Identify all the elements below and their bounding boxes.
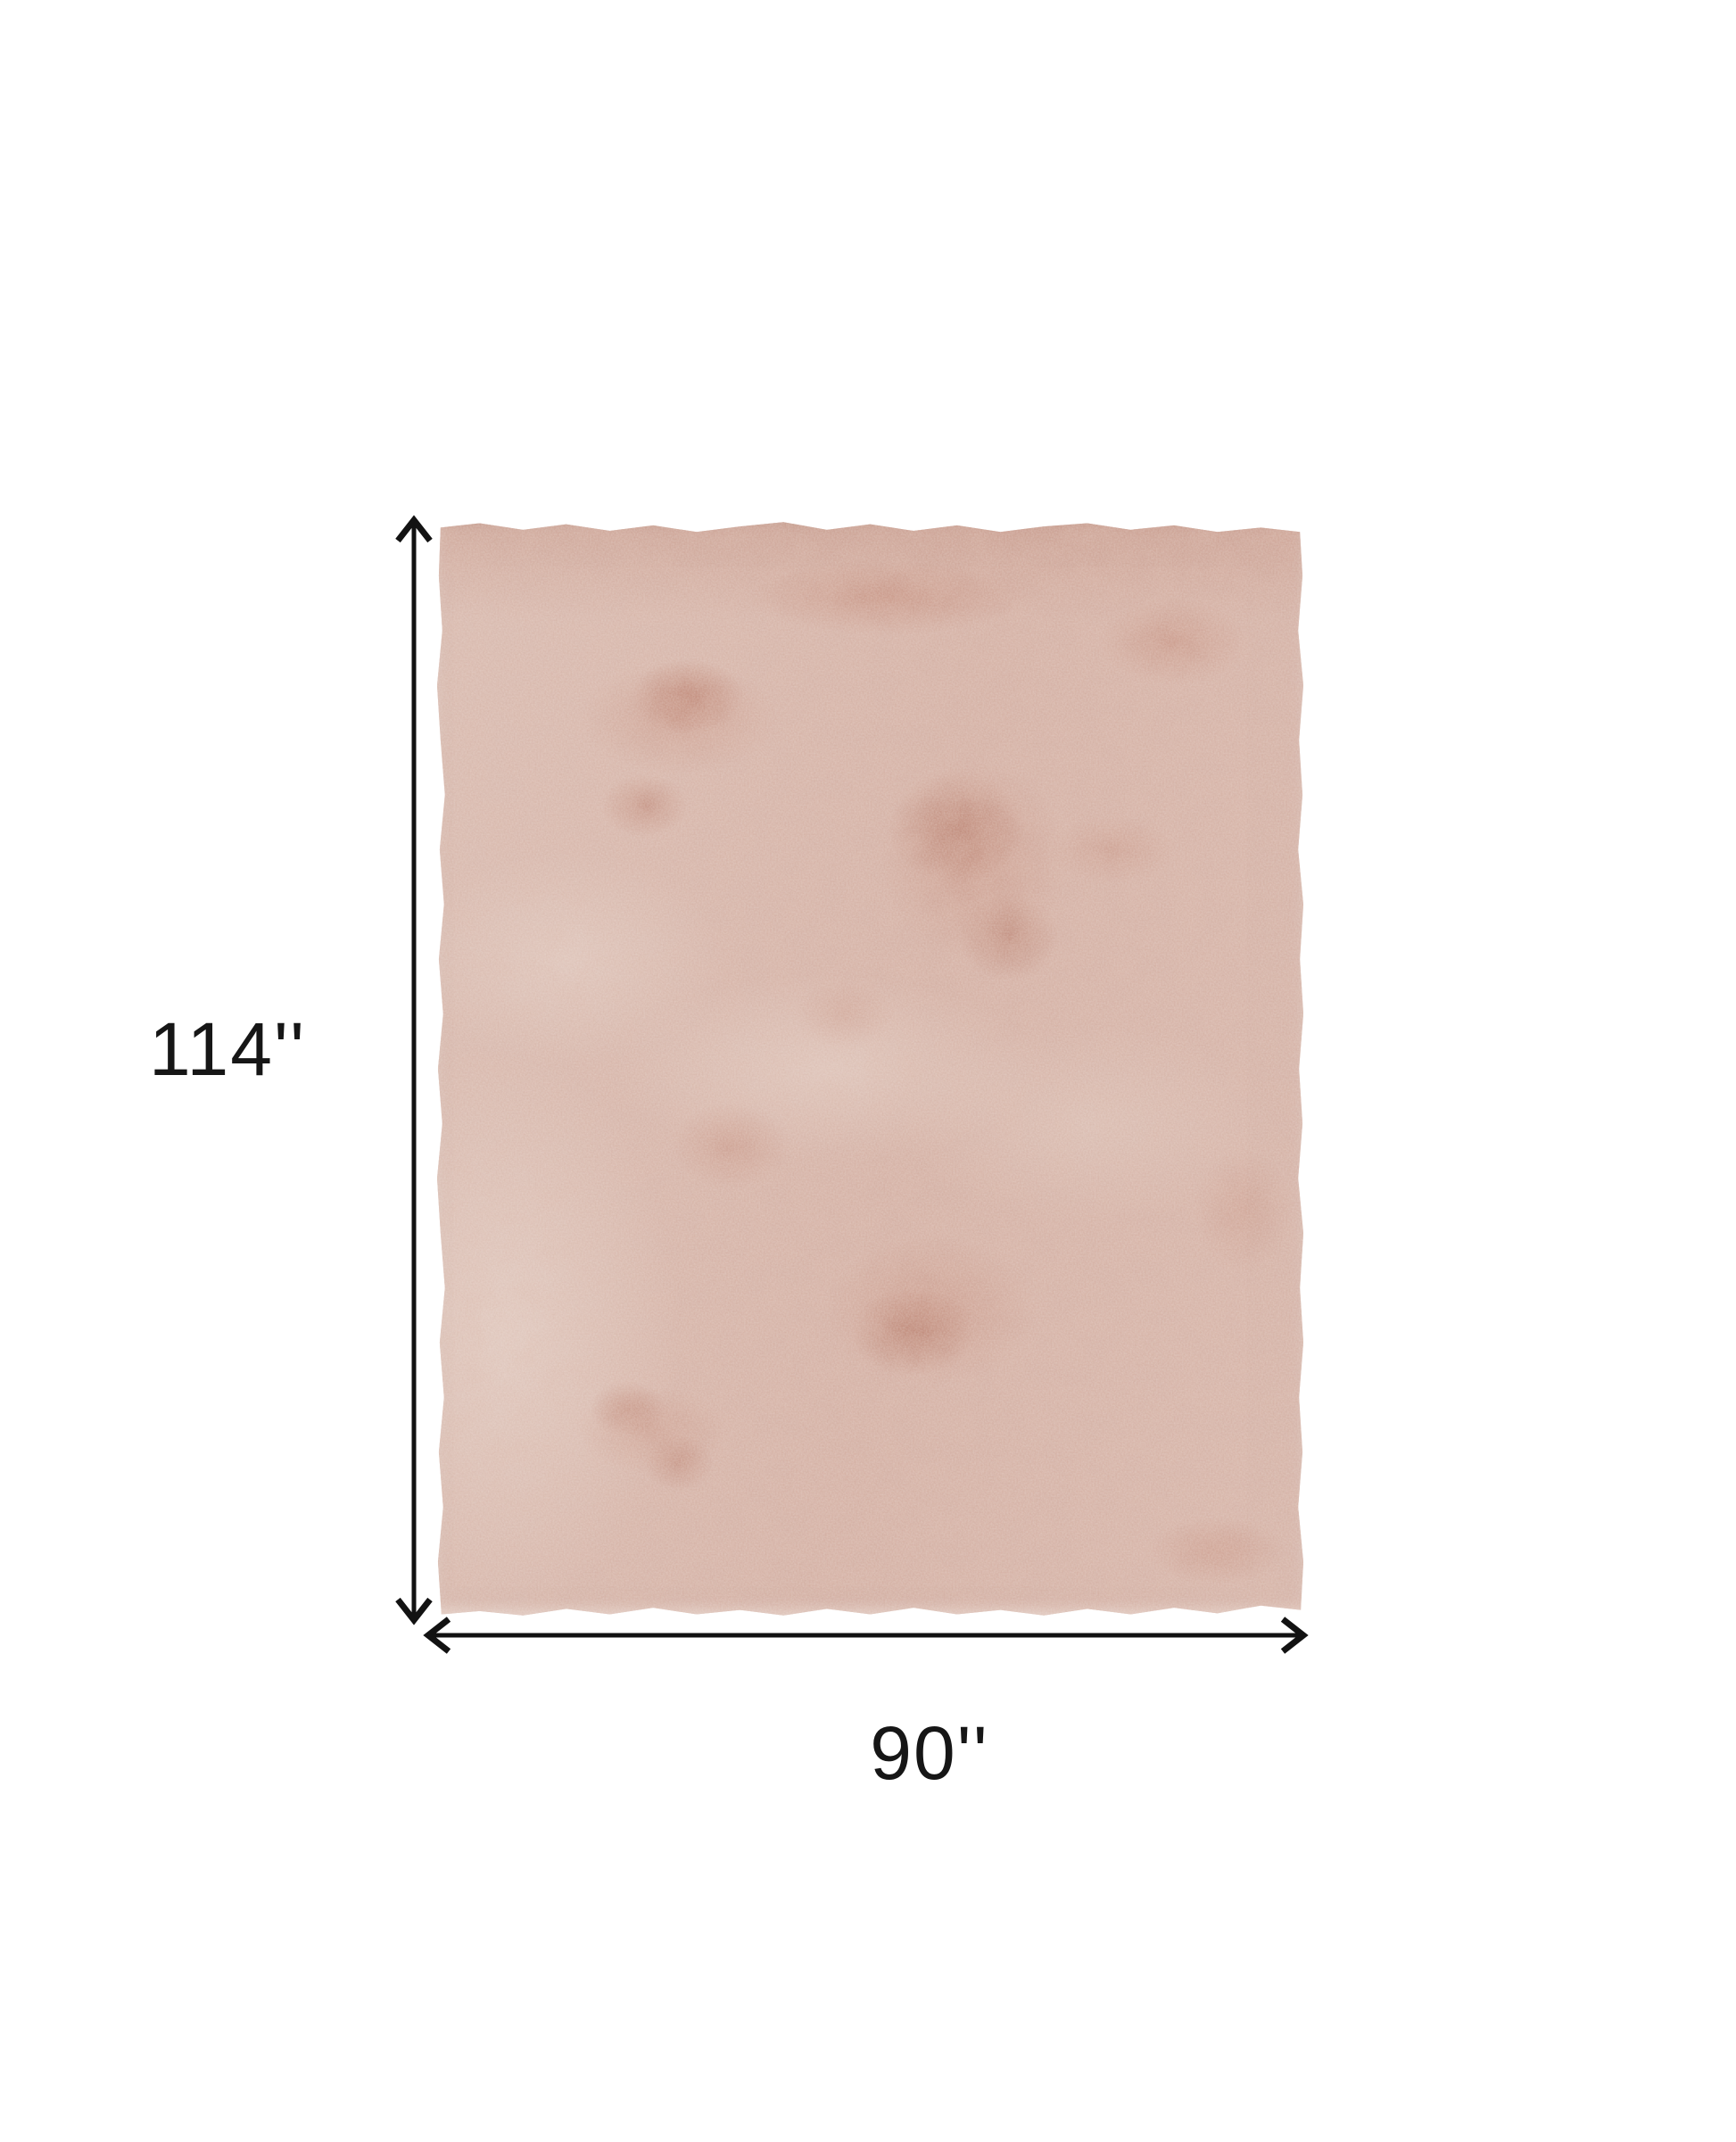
width-dimension-arrow	[428, 1619, 1303, 1651]
height-dimension-label: 114''	[107, 996, 348, 1103]
width-arrow-head-left	[428, 1619, 449, 1651]
product-dimension-diagram: 114'' 90''	[0, 0, 1736, 2142]
height-arrow-head-top	[398, 520, 430, 541]
height-dimension-arrow	[398, 520, 430, 1620]
height-arrow-head-bottom	[398, 1600, 430, 1620]
width-arrow-head-right	[1283, 1619, 1303, 1651]
rug-image	[436, 521, 1304, 1617]
rug-texture	[436, 521, 1304, 1617]
width-dimension-label: 90''	[818, 1700, 1041, 1807]
